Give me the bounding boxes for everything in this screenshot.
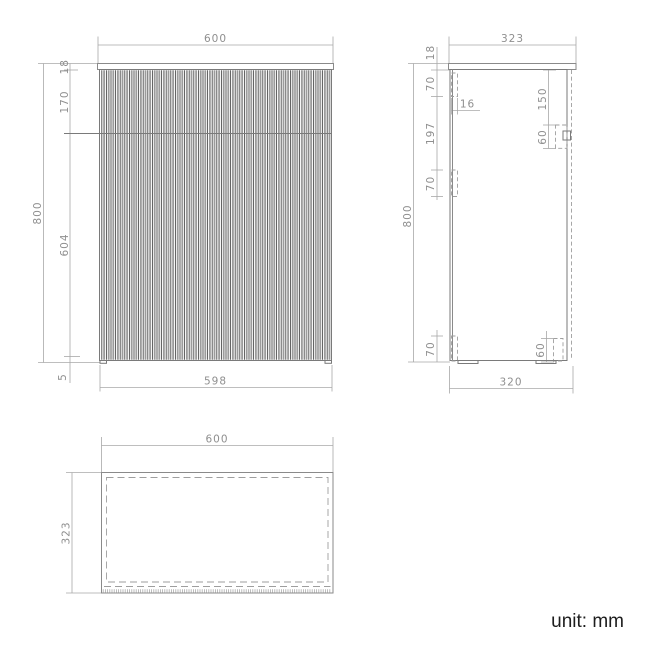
side-dim-back-column: 18 70 197 70 70 <box>425 45 450 362</box>
front-dim-segments: 18 170 604 5 <box>57 59 80 383</box>
front-door-height-label: 604 <box>59 233 71 256</box>
side-bottom-bracket-label: 60 <box>535 342 547 357</box>
front-width-body-label: 598 <box>204 376 227 388</box>
side-dim-depth-body: 320 <box>450 366 574 394</box>
top-view: 600 323 <box>61 434 334 594</box>
front-view: 600 800 18 170 604 5 <box>32 33 334 392</box>
side-depth-body-label: 320 <box>499 377 522 389</box>
front-width-top-label: 600 <box>204 33 227 45</box>
front-height-total-label: 800 <box>32 201 44 224</box>
front-countertop <box>98 64 334 70</box>
side-rail-gap-label: 197 <box>425 122 437 145</box>
top-countertop-outline <box>102 473 334 594</box>
vanity-dimension-drawing: 600 800 18 170 604 5 <box>0 0 650 650</box>
side-handle-bracket <box>556 125 568 148</box>
side-depth-top-label: 323 <box>501 33 524 45</box>
top-depth-label: 323 <box>61 521 73 544</box>
technical-drawing-page: 600 800 18 170 604 5 <box>0 0 650 650</box>
side-bottom-bracket <box>554 339 564 362</box>
top-width-label: 600 <box>205 434 228 446</box>
front-countertop-thickness-label: 18 <box>59 59 71 74</box>
top-dim-width: 600 <box>102 434 334 473</box>
side-countertop-thickness-label: 18 <box>425 45 437 60</box>
front-foot-left <box>100 361 107 364</box>
top-fluted-edge <box>103 589 330 592</box>
front-fluted-pattern <box>102 70 330 360</box>
front-dim-width-top: 600 <box>98 33 333 63</box>
side-countertop <box>449 64 577 70</box>
side-foot-back <box>458 361 478 364</box>
top-cabinet-hidden-outline <box>107 478 329 583</box>
front-dim-width-body: 598 <box>100 365 332 392</box>
front-drawer-height-label: 170 <box>59 90 71 113</box>
side-view: 323 800 18 70 197 70 70 <box>402 33 576 394</box>
front-bottom-gap-label: 5 <box>57 373 69 381</box>
side-height-total-label: 800 <box>402 204 414 227</box>
top-dim-depth: 323 <box>61 473 102 594</box>
side-dim-height-total: 800 <box>402 64 450 363</box>
side-rail-top-label: 70 <box>425 76 437 91</box>
front-foot-right <box>325 361 332 364</box>
unit-label: unit: mm <box>551 611 624 632</box>
side-handle-offset-label: 150 <box>537 87 549 110</box>
side-dim-rail-thickness: 16 <box>452 98 481 115</box>
side-dim-depth-top: 323 <box>449 33 576 63</box>
side-rail-mid-label: 70 <box>425 176 437 191</box>
side-rail-bottom-label: 70 <box>425 341 437 356</box>
side-dim-bottom-bracket: 60 <box>535 331 554 362</box>
side-dim-handle: 150 60 <box>537 70 556 149</box>
side-cabinet-body <box>450 70 567 361</box>
side-handle-height-label: 60 <box>537 129 549 144</box>
side-rail-thickness-label: 16 <box>460 99 475 111</box>
